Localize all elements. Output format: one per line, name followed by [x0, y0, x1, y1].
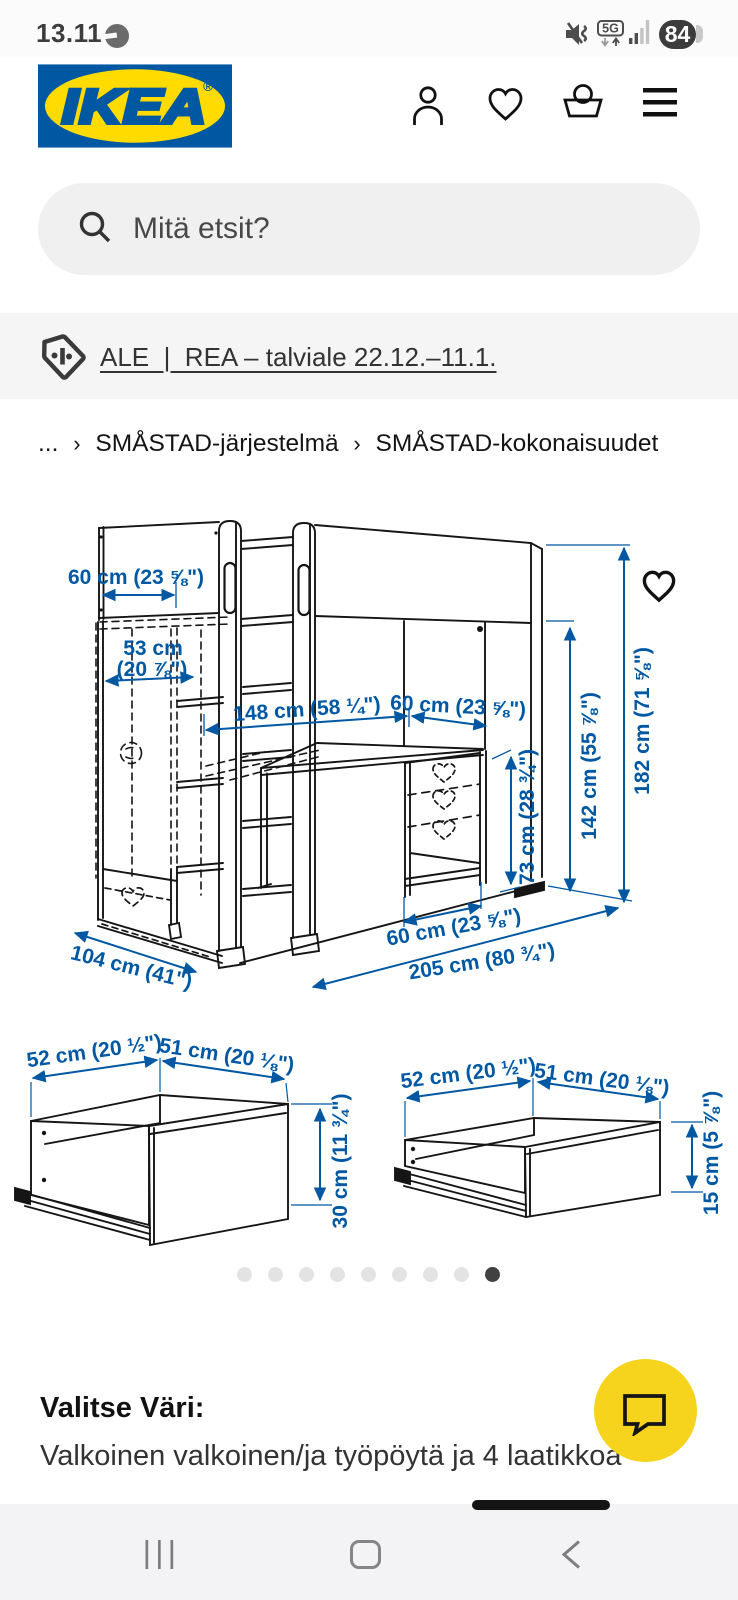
- svg-text:30 cm (11 ¾"): 30 cm (11 ¾"): [329, 1094, 352, 1229]
- svg-text:IKEA: IKEA: [62, 80, 207, 134]
- svg-text:148 cm (58 ¼"): 148 cm (58 ¼"): [232, 693, 381, 726]
- svg-text:52 cm (20 ½"): 52 cm (20 ½"): [25, 1031, 163, 1073]
- svg-text:142 cm (55 ⅞"): 142 cm (55 ⅞"): [578, 692, 601, 840]
- svg-text:®: ®: [203, 79, 213, 94]
- svg-text:51 cm (20 ⅛"): 51 cm (20 ⅛"): [533, 1059, 671, 1100]
- svg-text:60 cm (23 ⅝"): 60 cm (23 ⅝"): [68, 566, 204, 589]
- svg-text:15 cm (5 ⅞"): 15 cm (5 ⅞"): [700, 1091, 723, 1215]
- svg-text:182 cm (71 ⅝"): 182 cm (71 ⅝"): [631, 647, 654, 795]
- svg-text:52 cm (20 ½"): 52 cm (20 ½"): [399, 1054, 537, 1093]
- svg-text:73 cm (28 ¾"): 73 cm (28 ¾"): [516, 749, 539, 885]
- svg-text:60 cm (23 ⅝"): 60 cm (23 ⅝"): [390, 691, 527, 721]
- svg-text:205 cm (80 ¾"): 205 cm (80 ¾"): [407, 939, 556, 985]
- svg-text:53 cm: 53 cm: [123, 637, 183, 660]
- svg-text:5G: 5G: [602, 22, 619, 36]
- svg-text:(20 ⅞"): (20 ⅞"): [117, 658, 188, 681]
